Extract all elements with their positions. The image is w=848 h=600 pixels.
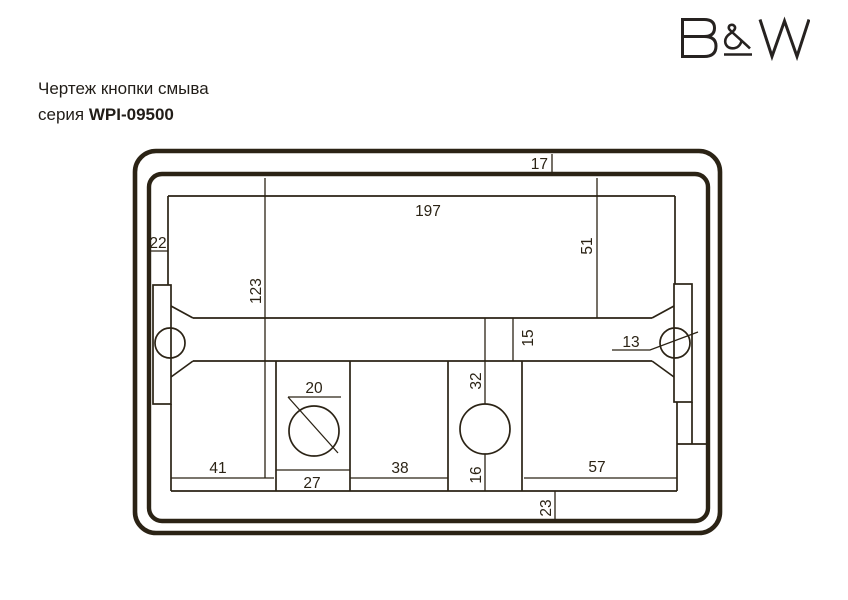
right-notch	[677, 402, 706, 444]
dim-label-15: 15	[520, 329, 537, 346]
dim-label-23: 23	[538, 499, 555, 516]
dim-label-41: 41	[209, 460, 226, 477]
dim-label-20: 20	[305, 380, 323, 397]
dimension-labels: 17 197 22 51 123 15 13 20 32 16 41 27 38…	[149, 156, 639, 517]
flush-button-drawing: 17 197 22 51 123 15 13 20 32 16 41 27 38…	[0, 0, 848, 600]
screw-hole-right	[660, 328, 690, 358]
chamfer-right-top	[652, 306, 674, 318]
button-hole-left	[289, 406, 339, 456]
page: { "logo": { "text": "B&W" }, "header": {…	[0, 0, 848, 600]
dim-label-17: 17	[531, 156, 548, 173]
dim-label-27: 27	[303, 475, 320, 492]
dim-label-38: 38	[391, 460, 408, 477]
dim-label-22: 22	[149, 235, 166, 252]
dim-label-32: 32	[468, 372, 485, 389]
dim-label-57: 57	[588, 459, 605, 476]
button-hole-right	[460, 404, 510, 454]
chamfer-left-bottom	[171, 361, 193, 377]
dim-label-51: 51	[579, 237, 596, 254]
crossbar	[193, 318, 652, 361]
chamfer-left-top	[171, 306, 193, 318]
dim-label-197: 197	[415, 203, 441, 220]
chamfer-right-bottom	[652, 361, 674, 377]
dim-label-13: 13	[622, 334, 639, 351]
dim-label-123: 123	[248, 278, 265, 304]
screw-hole-left	[155, 328, 185, 358]
dim-label-16: 16	[468, 466, 485, 483]
